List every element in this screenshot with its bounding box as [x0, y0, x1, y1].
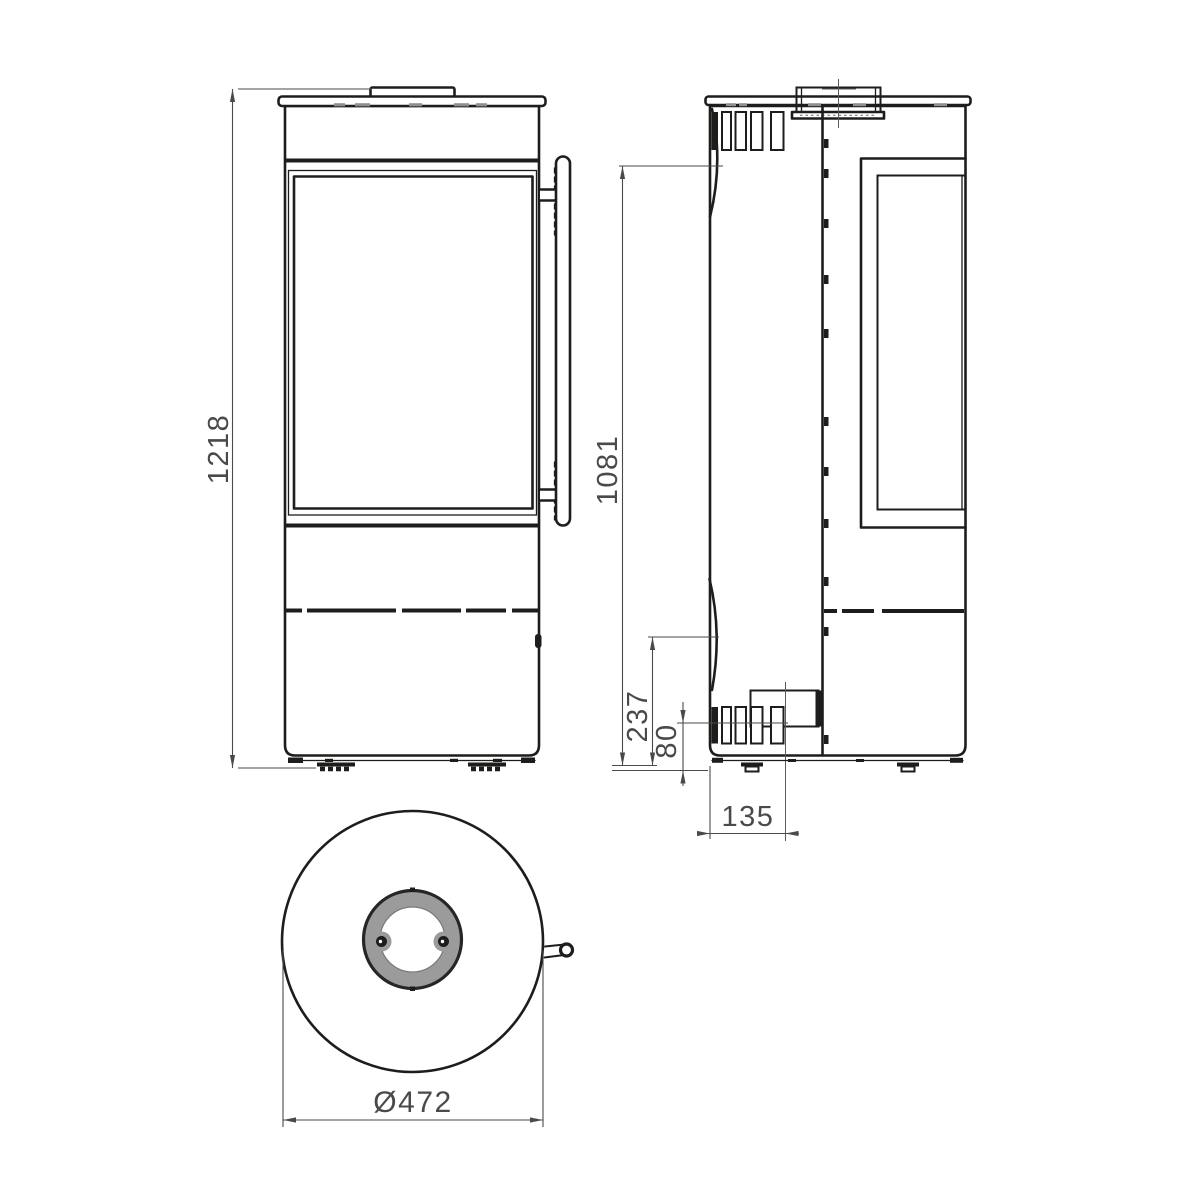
- dim-door-bottom-height-label: 237: [622, 690, 654, 743]
- dim-overall-height-label: 1218: [203, 414, 235, 485]
- door-glass: [294, 177, 533, 509]
- dim-door-top-height-label: 1081: [592, 435, 624, 506]
- dimension-air-inlet-offset: 135: [697, 766, 799, 839]
- dimension-door-top-height: 1081: [592, 166, 723, 766]
- door-handle-front: [540, 157, 570, 526]
- base-plate-side: [712, 758, 963, 763]
- handle-bar: [556, 157, 570, 526]
- door-handle-top-view: [545, 944, 573, 958]
- dim-diameter-label: Ø472: [373, 1086, 452, 1119]
- bottom-view: Ø472: [282, 811, 573, 1127]
- stove-three-view-drawing: 1218: [0, 0, 1200, 1200]
- flue-ring-top: [364, 888, 462, 992]
- front-view: 1218: [203, 88, 570, 770]
- top-plate-clips-front: [334, 103, 487, 106]
- dim-air-inlet-offset-label: 135: [722, 801, 775, 833]
- stove-feet-side: [741, 763, 919, 772]
- stove-technical-drawing-page: 1218: [0, 0, 1200, 1200]
- door-latch: [535, 634, 542, 648]
- stove-feet-front: [317, 763, 506, 770]
- side-view: 1081 237 80 135: [592, 79, 971, 841]
- stove-body-side: [710, 106, 966, 756]
- base-plate-front: [288, 758, 535, 764]
- dim-air-inlet-center-height-label: 80: [651, 723, 683, 758]
